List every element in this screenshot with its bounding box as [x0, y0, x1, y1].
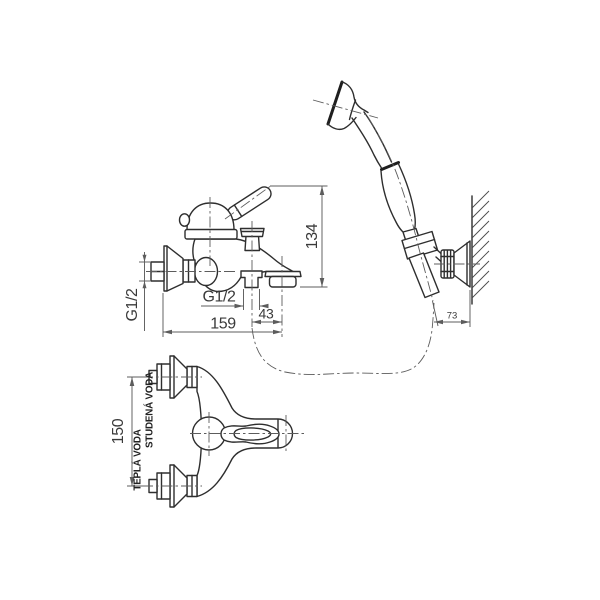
grip-right-edge — [399, 164, 416, 230]
thread-g12-outlet-text: G1/2 — [202, 289, 236, 306]
shower-face-line — [328, 82, 342, 124]
hose-end-tube — [409, 253, 439, 298]
shower-bell-top — [342, 82, 368, 113]
dome-collar — [185, 230, 237, 240]
cartridge-dome — [187, 203, 234, 230]
hand-shower-view — [328, 82, 489, 304]
dim-159-text: 159 — [210, 316, 236, 333]
shower-hose-outlet — [241, 271, 262, 288]
cl-shower-head-axis — [313, 100, 378, 118]
spout-aerator-body — [270, 277, 297, 288]
handle-joint-band — [382, 163, 399, 170]
handle-upper-right-edge — [364, 112, 392, 162]
dim-134-text: 134 — [304, 223, 321, 249]
mixer-side-view — [151, 184, 301, 291]
wall-hatching — [472, 191, 489, 298]
handle-upper-left-edge — [352, 118, 382, 168]
label-hot-water: TEPLÁ VODA — [132, 429, 144, 490]
arrow-inlet-top — [143, 255, 147, 262]
bath-mixer-drawing: 134 159 43 G1/2 G1/2 150 STUDENÁ VODA TE… — [0, 0, 600, 600]
arrow-inlet-bot — [143, 281, 147, 288]
technical-drawing-canvas: 134 159 43 G1/2 G1/2 150 STUDENÁ VODA TE… — [0, 0, 600, 600]
thread-g12-inlet-text: G1/2 — [124, 288, 141, 322]
grip-left-edge — [381, 171, 403, 232]
shower-handle — [352, 112, 421, 246]
dim-73-text: 73 — [447, 311, 458, 322]
shower-bracket — [402, 232, 470, 298]
dim-43-text: 43 — [259, 306, 274, 322]
mixer-plan-view — [149, 356, 293, 507]
dome-side-pip — [180, 214, 190, 226]
dim-150-text: 150 — [110, 418, 127, 444]
shower-bell-bottom — [328, 118, 356, 130]
cl-shower-hose — [252, 303, 434, 375]
shower-neck-joint — [350, 100, 356, 120]
spout-aerator-flange — [265, 272, 301, 277]
label-cold-water: STUDENÁ VODA — [144, 372, 156, 448]
